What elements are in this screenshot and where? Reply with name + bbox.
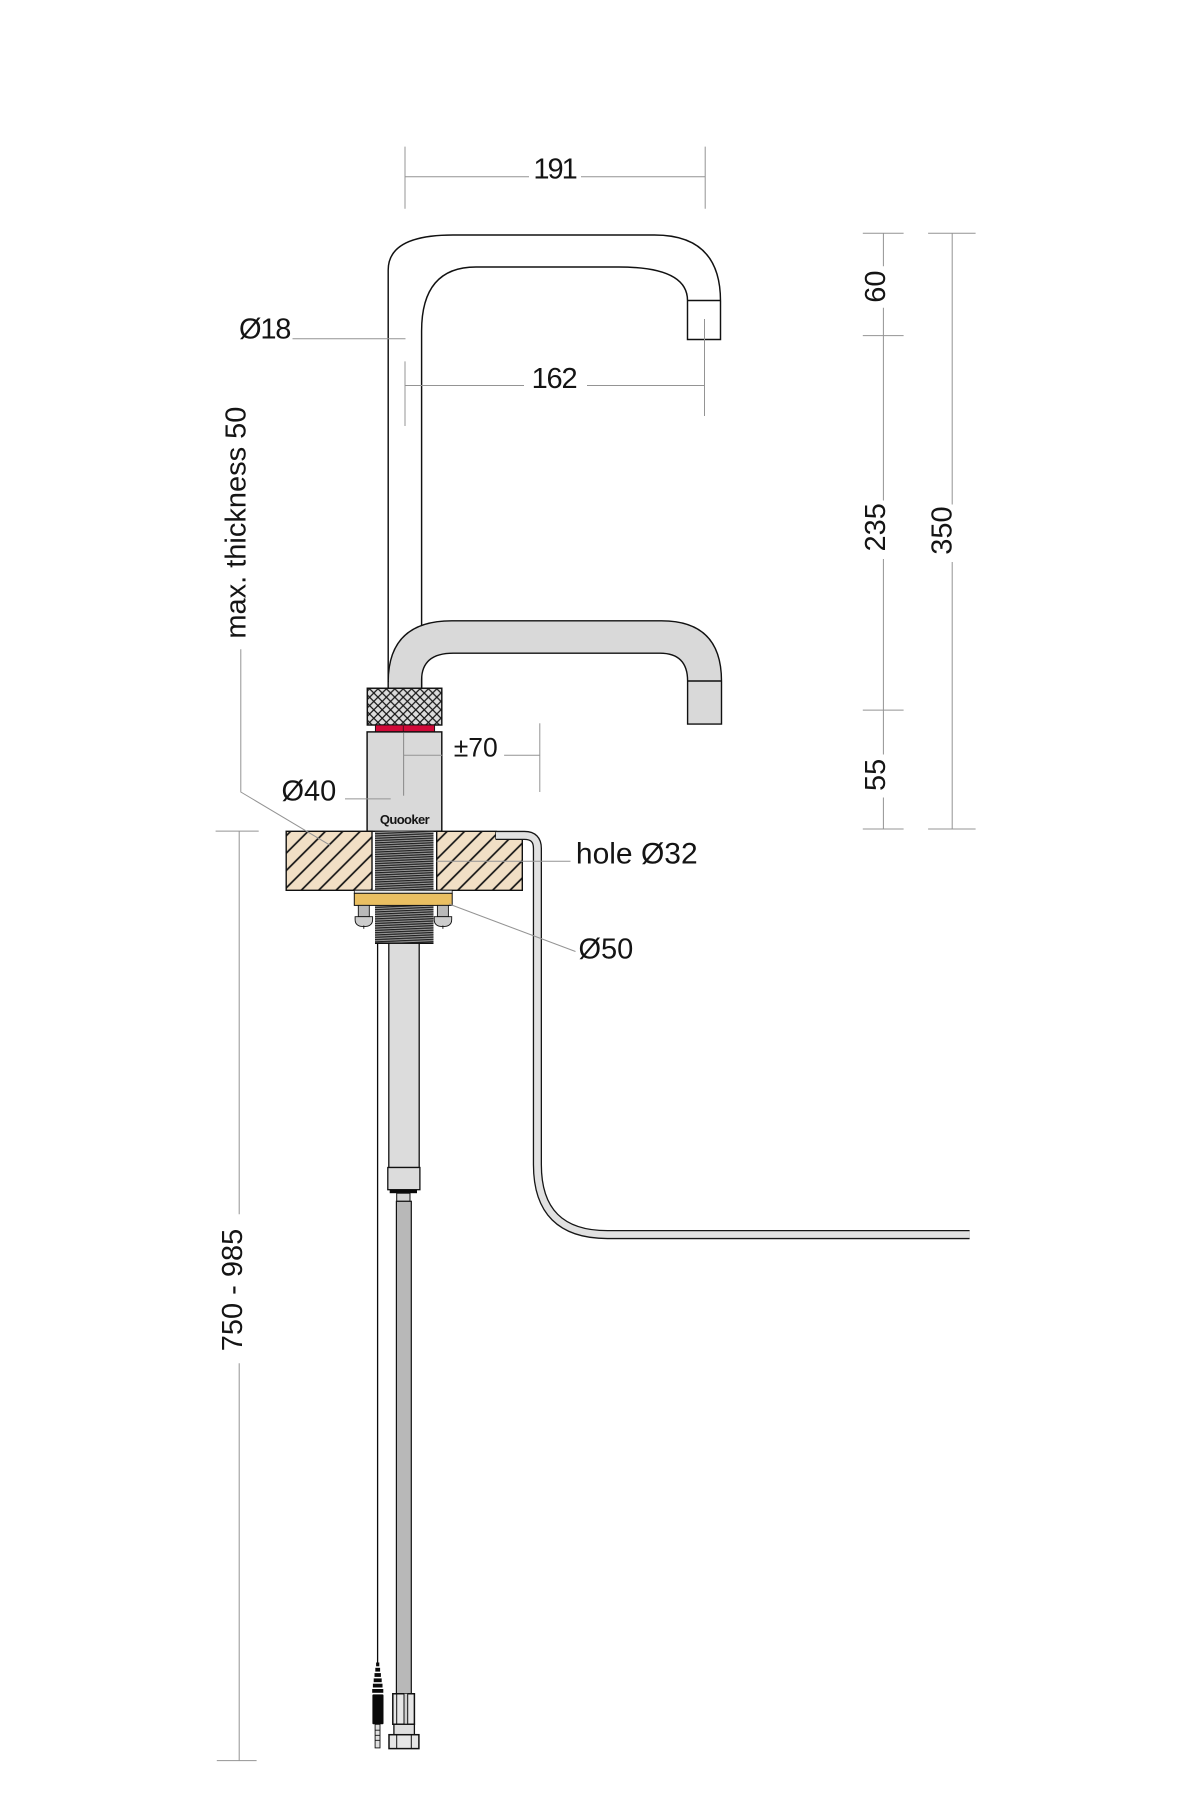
svg-text:Ø40: Ø40 [282,775,337,807]
svg-text:60: 60 [860,270,892,302]
svg-text:±70: ±70 [454,732,498,762]
svg-text:Ø50: Ø50 [579,934,634,966]
svg-text:Ø18: Ø18 [239,314,290,346]
svg-text:162: 162 [532,363,577,395]
svg-text:hole Ø32: hole Ø32 [576,837,698,870]
svg-text:350: 350 [927,506,959,554]
svg-text:55: 55 [860,759,892,791]
svg-text:750 - 985: 750 - 985 [217,1229,249,1352]
svg-text:235: 235 [860,503,892,551]
svg-text:191: 191 [533,154,576,186]
svg-text:Quooker: Quooker [380,812,430,827]
svg-text:max. thickness 50: max. thickness 50 [221,407,253,639]
